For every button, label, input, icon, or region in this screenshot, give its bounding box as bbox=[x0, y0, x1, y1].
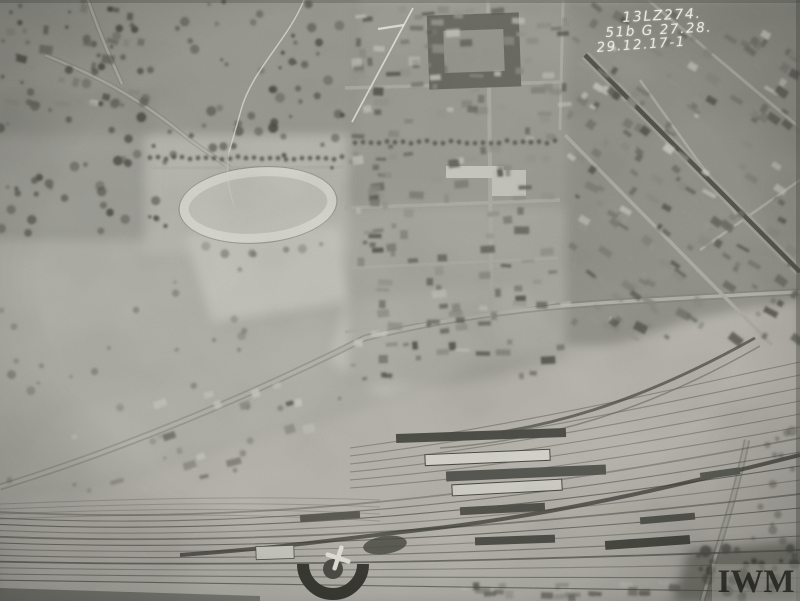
aerial-photograph: 13LZ274. 51b G 27.28. 29.12.17-1 IWM bbox=[0, 0, 800, 601]
iwm-watermark: IWM bbox=[712, 564, 800, 601]
aerial-photo-graphics bbox=[0, 0, 800, 601]
iwm-watermark-text: IWM bbox=[718, 566, 795, 599]
vignette bbox=[0, 0, 800, 601]
